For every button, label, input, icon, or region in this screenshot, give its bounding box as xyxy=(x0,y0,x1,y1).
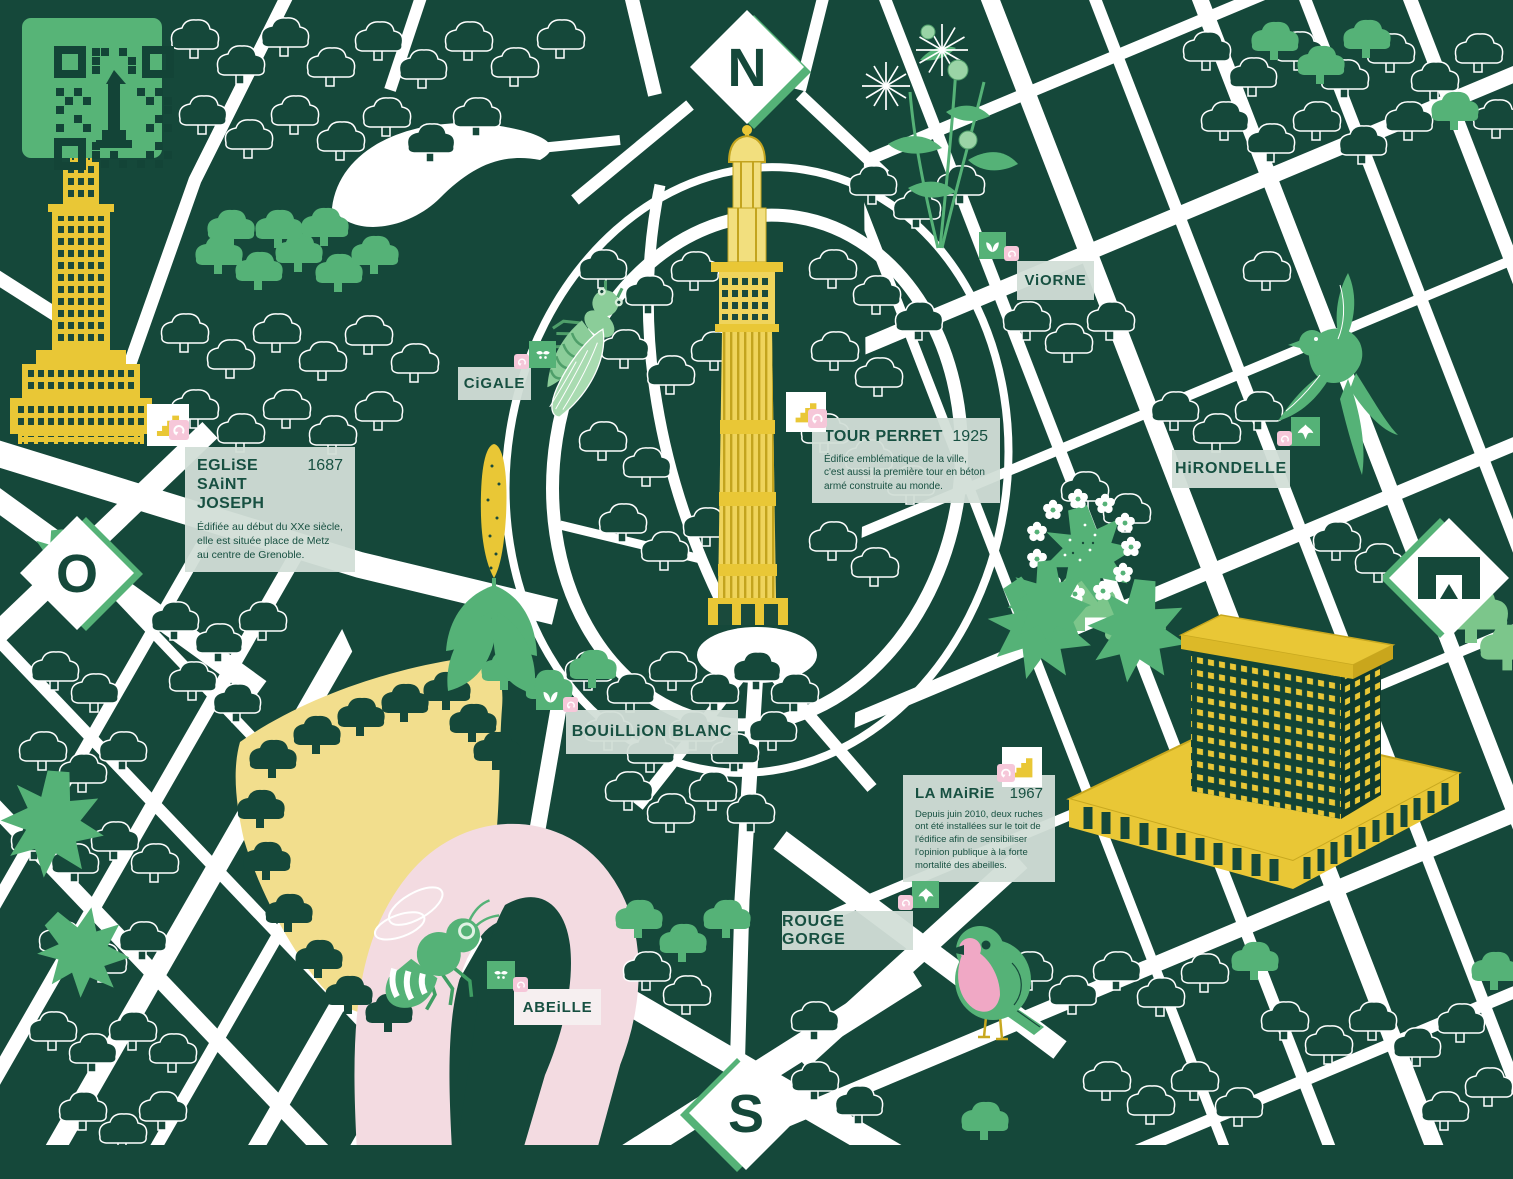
compass-south: S xyxy=(680,1047,812,1179)
refresh-arrow-icon xyxy=(901,898,911,908)
map-scene xyxy=(0,0,1513,1145)
landmark-description: Édifice emblématique de la ville, c'est … xyxy=(824,453,988,493)
refresh-badge-eglise[interactable] xyxy=(169,420,189,440)
species-marker-hirondelle[interactable] xyxy=(1291,417,1320,446)
landmark-card-la-mairie: LA MAiRiE 1967 Depuis juin 2010, deux ru… xyxy=(903,775,1055,882)
refresh-arrow-icon xyxy=(516,980,526,990)
landmark-card-tour-perret: TOUR PERRET 1925 Édifice emblématique de… xyxy=(812,418,1000,503)
refresh-badge-bouillion-blanc[interactable] xyxy=(563,697,578,712)
species-label-bouillion-blanc[interactable]: BOUiLLiON BLANC xyxy=(566,710,738,754)
refresh-badge-viorne[interactable] xyxy=(1004,246,1019,261)
diamond-face xyxy=(1389,518,1509,638)
refresh-badge-tour-perret[interactable] xyxy=(808,409,827,428)
species-marker-abeille[interactable] xyxy=(487,961,515,989)
qr-code[interactable] xyxy=(22,18,174,170)
species-marker-cigale[interactable] xyxy=(529,341,556,368)
species-label-rouge-gorge[interactable]: ROUGE GORGE xyxy=(782,911,913,950)
species-marker-rouge-gorge[interactable] xyxy=(912,881,939,908)
refresh-badge-rouge-gorge[interactable] xyxy=(898,895,913,910)
leaf-icon xyxy=(540,685,561,706)
landmark-year: 1925 xyxy=(944,428,988,446)
compass-north-letter: N xyxy=(728,38,767,98)
compass-north: N xyxy=(681,1,813,133)
insect-eyes-icon xyxy=(533,345,553,365)
refresh-arrow-icon xyxy=(811,412,824,425)
bird-icon xyxy=(1295,421,1316,442)
refresh-arrow-icon xyxy=(1000,767,1012,779)
landmark-year: 1687 xyxy=(299,457,343,475)
species-label-viorne[interactable]: ViORNE xyxy=(1017,261,1094,300)
refresh-arrow-icon xyxy=(566,700,576,710)
refresh-badge-la-mairie[interactable] xyxy=(997,764,1015,782)
refresh-arrow-icon xyxy=(1007,249,1017,259)
landmark-year: 1967 xyxy=(1002,785,1043,802)
landmark-name: LA MAiRiE xyxy=(915,785,995,803)
species-label-hirondelle[interactable]: HiRONDELLE xyxy=(1172,450,1290,488)
compass-south-letter: S xyxy=(728,1084,764,1144)
species-marker-viorne[interactable] xyxy=(979,232,1006,259)
bird-icon xyxy=(916,885,936,905)
refresh-badge-hirondelle[interactable] xyxy=(1277,431,1292,446)
species-marker-bouillion-blanc[interactable] xyxy=(536,681,565,710)
landmark-description: Depuis juin 2010, deux ruches ont été in… xyxy=(915,809,1043,873)
species-label-cigale[interactable]: CiGALE xyxy=(458,367,531,400)
refresh-badge-abeille[interactable] xyxy=(513,977,528,992)
insect-eyes-icon xyxy=(491,965,511,985)
compass-west: O xyxy=(11,507,143,639)
species-label-abeille[interactable]: ABEiLLE xyxy=(514,989,601,1025)
refresh-arrow-icon xyxy=(172,423,186,437)
refresh-arrow-icon xyxy=(517,357,527,367)
landmark-name: EGLiSE SAiNT JOSEPH xyxy=(197,457,299,514)
poi-diamond-gate[interactable] xyxy=(1383,512,1513,644)
landmark-card-eglise-saint-joseph: EGLiSE SAiNT JOSEPH 1687 Édifiée au débu… xyxy=(185,447,355,572)
leaf-icon xyxy=(983,236,1002,255)
landmark-description: Édifiée au début du XXe siècle, elle est… xyxy=(197,520,343,562)
landmark-name: TOUR PERRET xyxy=(824,428,943,447)
refresh-arrow-icon xyxy=(1280,434,1290,444)
compass-west-letter: O xyxy=(56,544,98,604)
refresh-badge-cigale[interactable] xyxy=(514,354,529,369)
